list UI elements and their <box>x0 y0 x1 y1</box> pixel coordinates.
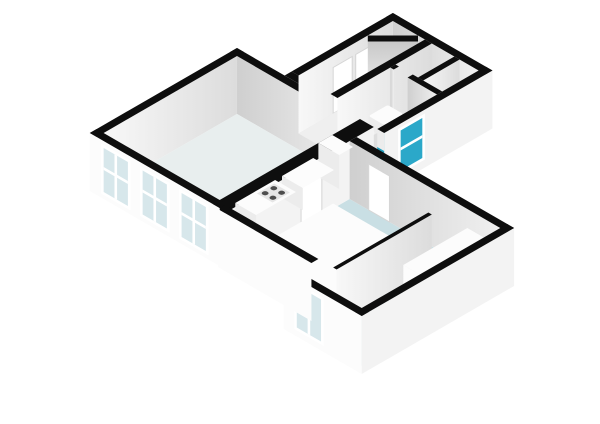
floorplan-stage <box>0 0 600 424</box>
floorplan-3d-render <box>0 0 600 424</box>
diagonal-wall-top <box>368 36 418 42</box>
